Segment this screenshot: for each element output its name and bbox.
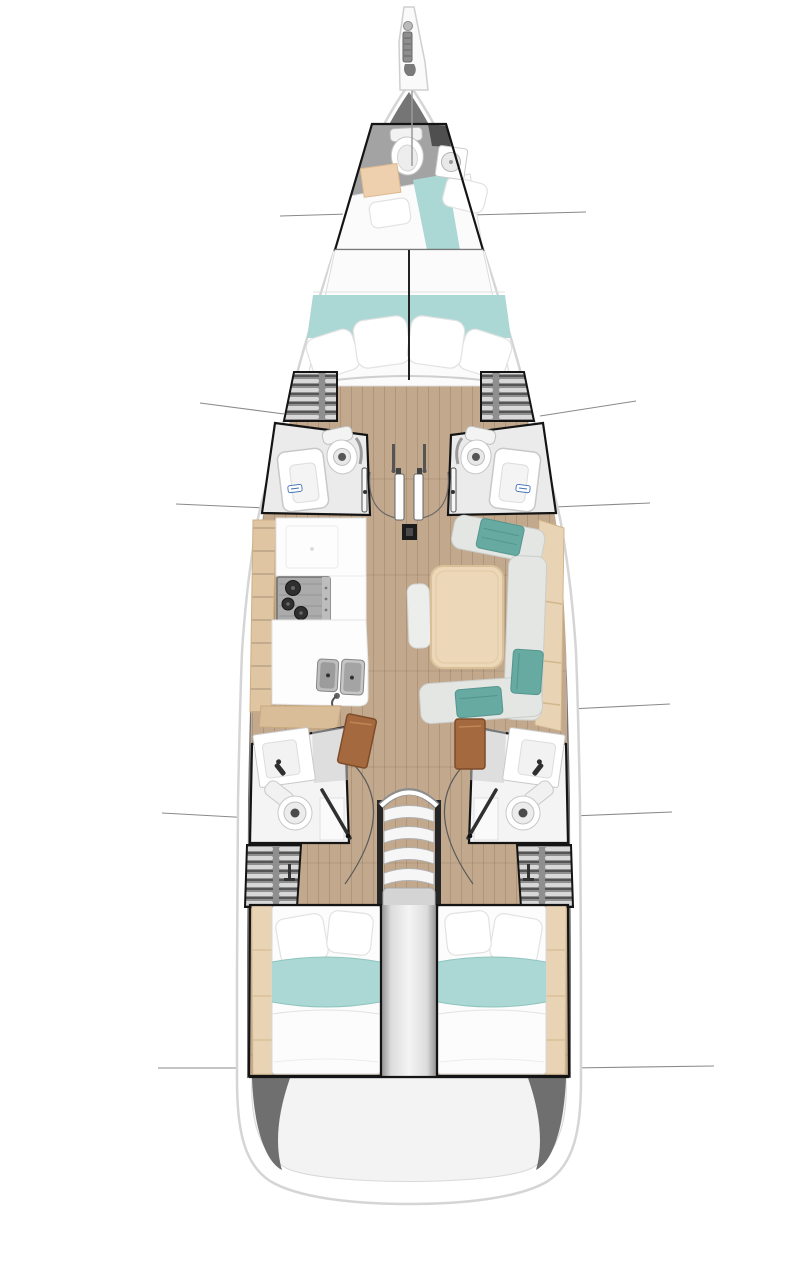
cabin-door-handle (288, 864, 291, 878)
anchor-roller-wheel (404, 22, 413, 31)
nav-seat-starboard (455, 719, 485, 769)
track-foot (392, 469, 396, 473)
galley (250, 518, 368, 729)
forward-head-starboard (448, 423, 556, 515)
sink-counter-icon (253, 727, 316, 787)
teal-cushion (455, 686, 503, 718)
ottoman (407, 584, 431, 649)
yacht-deck-plan (0, 0, 807, 1280)
door-handle (396, 468, 401, 474)
deck-plan-svg (0, 0, 807, 1280)
stair-rail-starboard (435, 800, 441, 906)
pillow (406, 314, 466, 369)
pillow (352, 314, 412, 369)
door-track-rod (392, 444, 395, 470)
door-handle (346, 834, 351, 839)
callout-line (200, 403, 284, 414)
stove-icon (277, 577, 330, 621)
callout-line (176, 504, 266, 508)
teal-cushion (511, 649, 544, 695)
anchor-roller-track (403, 32, 412, 62)
galley-counter-mid (330, 576, 366, 620)
pillow (326, 910, 374, 956)
louvered-locker (245, 845, 301, 907)
hull-plank-port (252, 906, 272, 1074)
wardrobe-louvered (284, 372, 337, 421)
sink-icon (435, 145, 468, 180)
callout-line (554, 503, 650, 507)
callout-line (470, 212, 586, 215)
aft-cabin-port-bed (272, 906, 380, 1074)
door-leaf (362, 468, 367, 512)
locker-knob (310, 547, 314, 551)
galley-sideboard (259, 706, 341, 729)
forward-head-port (262, 423, 370, 515)
cabin-door-handle (284, 878, 295, 881)
pillow (368, 197, 412, 229)
callout-line (570, 704, 670, 709)
shower-tray-icon (277, 447, 330, 512)
hull-plank-starboard (546, 906, 566, 1074)
wardrobe-louvered (481, 372, 534, 421)
callout-line (540, 401, 636, 416)
aft-cabins (249, 905, 569, 1078)
door-leaf (395, 474, 404, 520)
aft-cabin-starboard-bed (438, 906, 546, 1074)
transom (249, 1077, 569, 1182)
mast-foot (402, 524, 417, 540)
stair-rail-port (377, 800, 383, 906)
bed-teal-band (272, 957, 380, 1007)
transom-deck (252, 1078, 567, 1182)
callout-line (572, 812, 672, 816)
engine-compartment (381, 905, 437, 1078)
callout-line (570, 1066, 714, 1068)
forepeak-cabinet (360, 163, 401, 197)
callout-line (280, 214, 348, 216)
companionway-stairs (377, 792, 441, 915)
galley-counter-forward (276, 518, 366, 576)
salon-table (431, 566, 503, 668)
door-handle (363, 490, 367, 494)
